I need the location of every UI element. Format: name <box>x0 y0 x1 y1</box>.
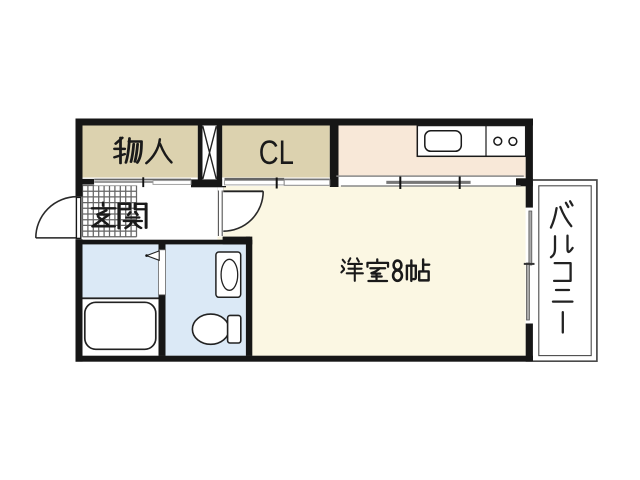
svg-text:CL: CL <box>259 134 294 172</box>
